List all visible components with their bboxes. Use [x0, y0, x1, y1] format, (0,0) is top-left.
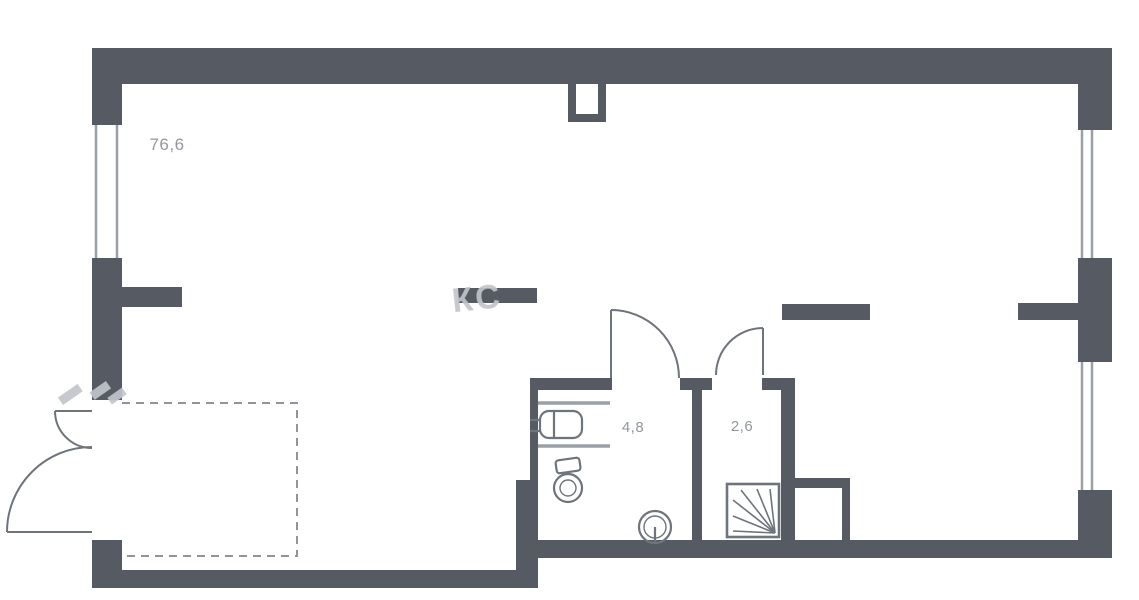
toilet-bowl-inner [560, 480, 576, 496]
shower-tray-icon [727, 484, 779, 537]
wall-stub-right [1018, 303, 1078, 320]
room-label-hall: 2,6 [731, 418, 753, 435]
bathroom-door-swing [611, 310, 679, 378]
wall-niche-right [842, 488, 850, 541]
entry-door-opening [92, 400, 122, 540]
watermark-text: КС [450, 277, 505, 320]
floor-plan-canvas: 76,6 4,8 2,6 КС [0, 0, 1139, 600]
walls [92, 48, 1112, 588]
entry-door-arc-small [55, 411, 92, 448]
wall-stub-left [122, 287, 182, 307]
wall-niche-top [795, 478, 850, 488]
dashed-zone-outline [122, 403, 297, 556]
toilet-tank [555, 457, 581, 473]
sink-basin [540, 411, 582, 438]
wall-step-block [516, 480, 538, 588]
wall-exterior-top [92, 48, 1112, 84]
hall-door-arc [716, 328, 763, 375]
toilet-icon [554, 457, 582, 502]
wall-hall-door-jamb [762, 378, 795, 390]
ventilation-shaft-inner [576, 84, 598, 114]
room-label-main: 76,6 [149, 135, 184, 154]
wall-bathroom-top [530, 378, 612, 390]
toilet-bowl [554, 474, 582, 502]
entry-door-arc-main [7, 447, 92, 532]
hall-door-swing [716, 328, 763, 375]
wall-stub-hall [782, 304, 870, 320]
wall-hall-right [781, 390, 795, 541]
wall-bathroom-hall-divider [692, 378, 702, 541]
shower-tray-fan-lines [733, 489, 775, 533]
wall-openings [92, 84, 1112, 540]
floor-drain-icon [639, 511, 671, 543]
window-glazing-lines [96, 125, 1092, 490]
bathroom-door-arc [611, 310, 679, 378]
floor-plan-svg: 76,6 4,8 2,6 КС [0, 0, 1139, 600]
entry-door-swing [7, 411, 92, 532]
room-label-bathroom: 4,8 [622, 419, 644, 436]
wall-exterior-bottom-right [516, 540, 1112, 558]
wall-exterior-bottom-left [92, 570, 518, 588]
